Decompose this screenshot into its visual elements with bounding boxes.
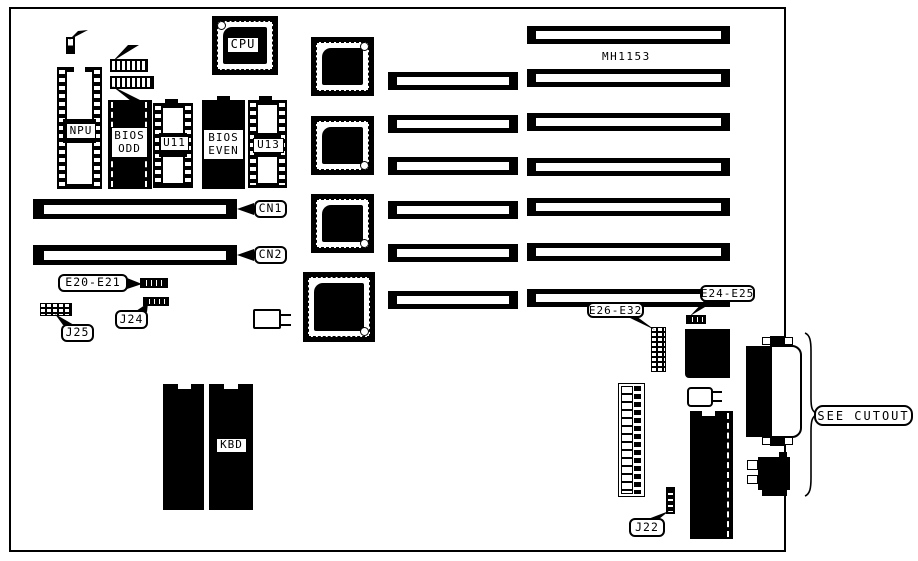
din-connector-body [758, 457, 790, 490]
db25-bracket-bottom [770, 436, 785, 446]
isa-slot-cn1 [33, 199, 237, 219]
simm-slot [527, 69, 730, 87]
e24-e25-callout: E24-E25 [700, 285, 755, 302]
simm-slot [388, 291, 518, 309]
long-dip-chip [690, 411, 733, 539]
cpu-label: CPU [227, 37, 259, 53]
plcc-die [322, 127, 363, 164]
kbd-label: KBD [216, 438, 247, 453]
plcc-notch [360, 327, 369, 336]
plcc-notch [360, 42, 369, 51]
simm-slot [388, 72, 518, 90]
plcc-die [314, 283, 364, 331]
db25-screw [784, 337, 793, 345]
npu-label-text: NPU [70, 125, 93, 138]
e20-e21-callout: E20-E21 [58, 274, 128, 292]
power-connector-contacts [621, 386, 633, 494]
plcc-die [322, 48, 363, 85]
power-connector-pins [634, 386, 641, 494]
bios-odd-line2: ODD [118, 143, 141, 156]
e26-e32-callout: E26-E32 [587, 302, 644, 318]
din-connector-tab-top [779, 452, 787, 458]
bios-odd-label: BIOS ODD [111, 127, 148, 158]
jumper-block-e26-e32 [651, 327, 666, 372]
chip-notch [224, 384, 238, 389]
simm-slot [388, 115, 518, 133]
cn2-callout: CN2 [254, 246, 287, 264]
u13-notch-tab [259, 96, 272, 101]
simm-slot [527, 26, 730, 44]
crystal-2 [687, 387, 713, 407]
e20-e21-text: E20-E21 [65, 277, 120, 289]
bios-even-notch-tab [217, 96, 230, 101]
part-number-text: MH1153 [602, 50, 651, 63]
plcc-chip-2 [311, 116, 374, 175]
simm-slot [527, 113, 730, 131]
j24-callout: J24 [115, 310, 148, 329]
e24-e25-text: E24-E25 [701, 288, 754, 299]
kbd-label-text: KBD [220, 439, 243, 452]
crystal-1-pin [281, 324, 291, 326]
isa-slot-cn2 [33, 245, 237, 265]
db25-screw [762, 337, 771, 345]
plcc-notch [360, 161, 369, 170]
see-cutout-text: SEE CUTOUT [817, 410, 909, 422]
simm-slot [388, 201, 518, 219]
din-pin [747, 460, 758, 470]
square-chip [685, 329, 730, 378]
cn2-text: CN2 [259, 249, 283, 261]
jumper-block-j24 [143, 297, 169, 306]
bios-odd-line1: BIOS [114, 130, 145, 143]
u11-notch-tab [165, 99, 178, 104]
j22-text: J22 [635, 522, 659, 534]
crystal-2-pin [713, 391, 722, 393]
j25-text: J25 [66, 327, 90, 339]
jumper-block-j25 [40, 303, 72, 316]
chip-notch [702, 411, 715, 416]
see-cutout-callout: SEE CUTOUT [814, 405, 913, 426]
npu-label: NPU [66, 123, 96, 139]
u13-label-text: U13 [257, 139, 280, 152]
cn1-callout: CN1 [254, 200, 287, 218]
u11-label: U11 [160, 136, 189, 151]
u13-label: U13 [253, 138, 284, 153]
crystal-1 [253, 309, 281, 329]
kbd-chip-left [163, 384, 204, 510]
din-connector-tab-bottom [762, 490, 787, 496]
j25-callout: J25 [61, 324, 94, 342]
plcc-chip-3 [311, 194, 374, 253]
simm-slot [527, 198, 730, 216]
simm-slot [527, 243, 730, 261]
j22-callout: J22 [629, 518, 665, 537]
long-dip-dash [727, 413, 729, 537]
bios-even-line1: BIOS [208, 132, 239, 145]
db25-connector-body [746, 346, 772, 437]
simm-slot [527, 158, 730, 176]
cpu-label-text: CPU [231, 38, 256, 52]
bios-even-line2: EVEN [208, 145, 239, 158]
plcc-die [322, 205, 363, 242]
din-pin [747, 475, 758, 484]
plcc-chip-1 [311, 37, 374, 96]
db25-screw [784, 437, 793, 445]
cn1-text: CN1 [259, 203, 283, 215]
jumper-block-j22 [666, 487, 675, 514]
crystal-1-pin [281, 314, 291, 316]
u11-label-text: U11 [163, 137, 186, 150]
jumper-block-e3-e8 [110, 59, 148, 72]
power-connector [618, 383, 645, 497]
db25-connector-shell [770, 345, 802, 438]
e26-e32-text: E26-E32 [589, 305, 642, 316]
crystal-2-pin [713, 400, 722, 402]
simm-slot [388, 157, 518, 175]
jumper-block-e9-e15 [110, 76, 154, 89]
db25-screw [762, 437, 771, 445]
plcc-chip-4 [303, 272, 375, 342]
bios-even-label: BIOS EVEN [203, 129, 244, 160]
part-number: MH1153 [602, 50, 651, 63]
jumper-block-e24-e25 [686, 315, 706, 324]
jumper-e2 [66, 37, 75, 54]
simm-slot [388, 244, 518, 262]
chip-notch [178, 384, 191, 389]
motherboard-diagram: CPU NPU BIOS ODD U11 BIOS EVEN [0, 0, 918, 561]
jumper-block-e20-e21 [140, 278, 168, 288]
plcc-notch [360, 239, 369, 248]
cpu-pin1-notch [217, 21, 226, 30]
npu-notch [74, 67, 85, 73]
j24-text: J24 [120, 314, 144, 326]
